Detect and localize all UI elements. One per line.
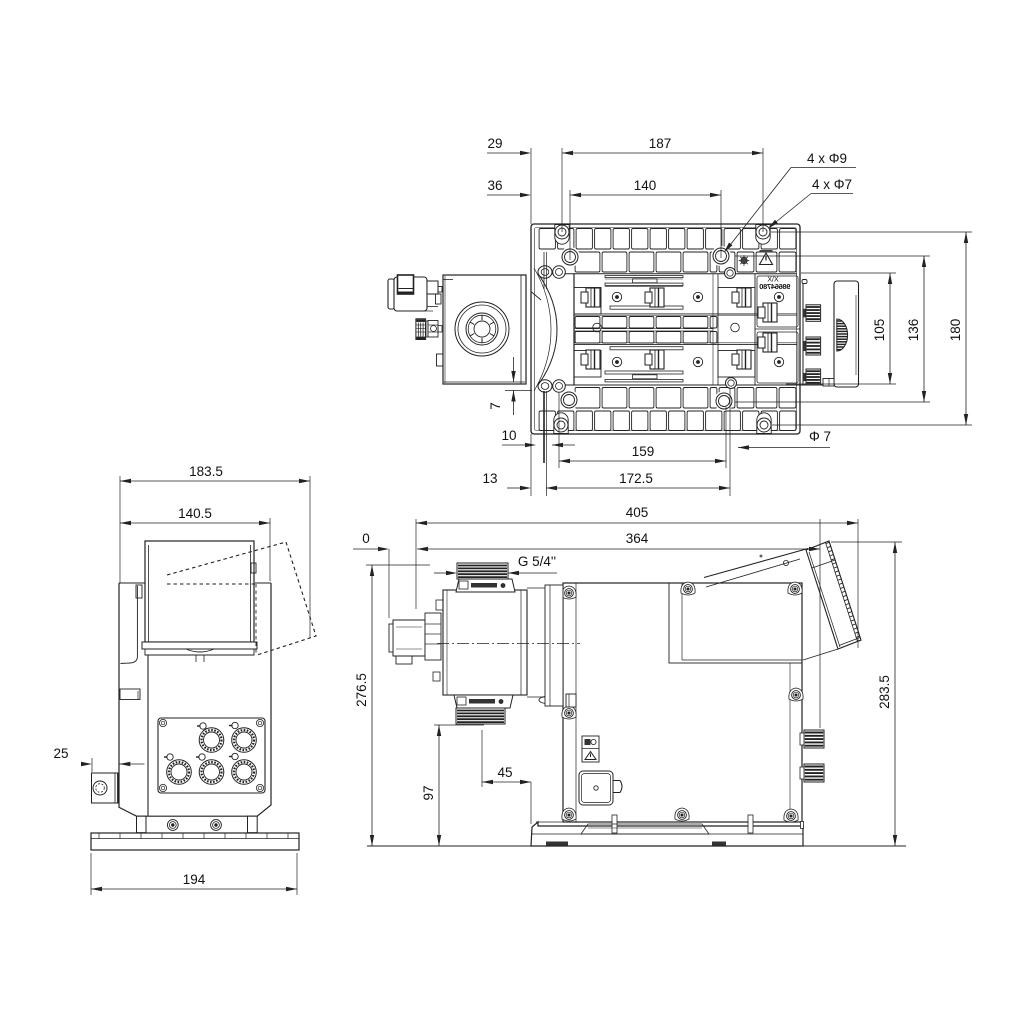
svg-text:276.5: 276.5 xyxy=(354,673,369,707)
svg-text:187: 187 xyxy=(649,136,672,151)
svg-text:36: 36 xyxy=(487,178,502,193)
svg-text:29: 29 xyxy=(487,136,502,151)
svg-text:105: 105 xyxy=(872,319,887,342)
svg-text:136: 136 xyxy=(906,319,921,342)
svg-text:140.5: 140.5 xyxy=(178,506,212,521)
svg-text:159: 159 xyxy=(632,444,655,459)
svg-text:98664780: 98664780 xyxy=(759,282,790,291)
svg-text:172.5: 172.5 xyxy=(619,471,653,486)
svg-text:194: 194 xyxy=(183,872,206,887)
svg-text:7: 7 xyxy=(488,402,503,410)
svg-text:283.5: 283.5 xyxy=(877,675,892,709)
svg-text:4 x Φ7: 4 x Φ7 xyxy=(812,177,852,192)
svg-text:140: 140 xyxy=(634,178,657,193)
svg-text:405: 405 xyxy=(626,505,649,520)
svg-text:25: 25 xyxy=(53,746,68,761)
svg-text:45: 45 xyxy=(497,765,512,780)
svg-text:Φ 7: Φ 7 xyxy=(809,429,831,444)
svg-text:13: 13 xyxy=(482,471,497,486)
svg-text:183.5: 183.5 xyxy=(189,464,223,479)
svg-text:G 5/4'': G 5/4'' xyxy=(518,554,556,569)
svg-text:364: 364 xyxy=(626,531,649,546)
svg-text:0: 0 xyxy=(362,531,370,546)
svg-text:4 x Φ9: 4 x Φ9 xyxy=(807,151,847,166)
svg-text:180: 180 xyxy=(948,319,963,342)
svg-text:10: 10 xyxy=(501,428,516,443)
svg-text:97: 97 xyxy=(421,785,436,800)
